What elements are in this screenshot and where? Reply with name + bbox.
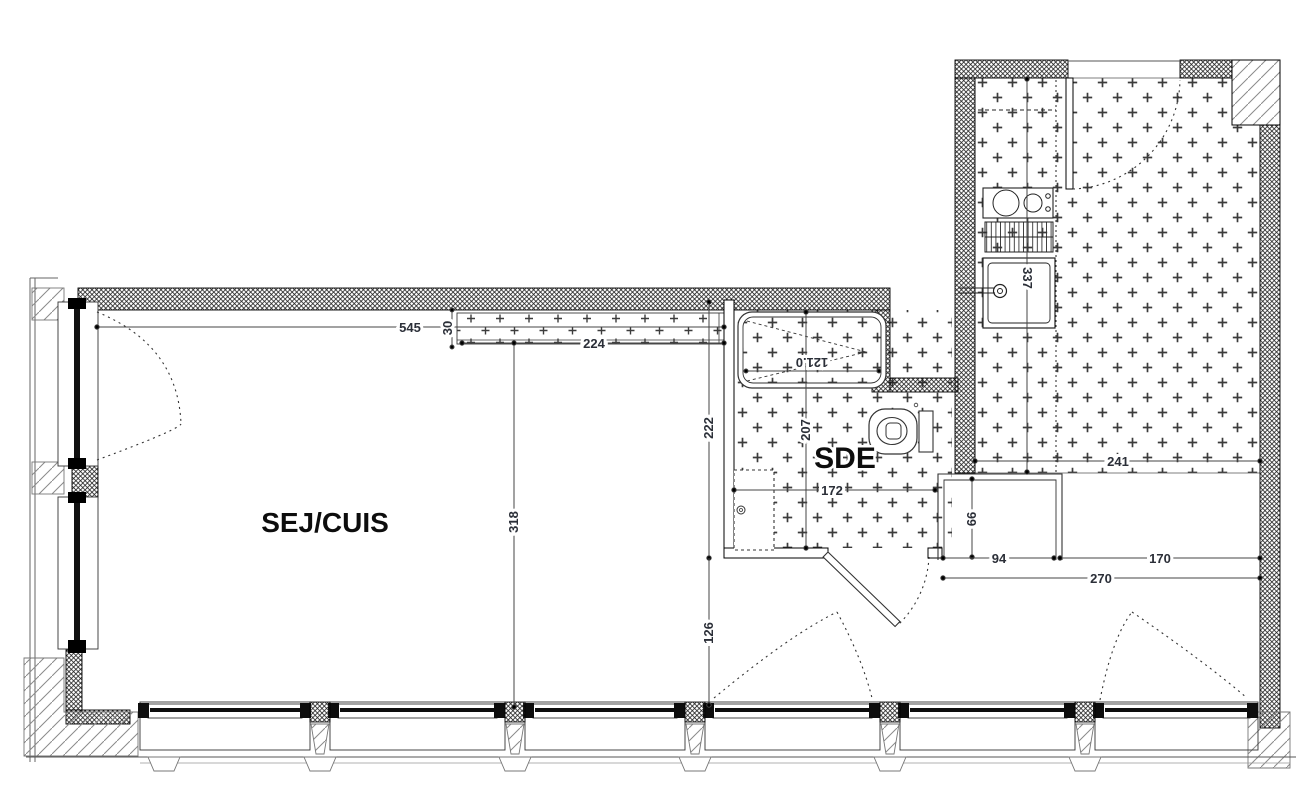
drainer	[985, 222, 1053, 252]
sde-door-leaf	[823, 552, 900, 627]
floor-plan-page: 545 224 30 318 222 126 207 172 121.0 241…	[0, 0, 1296, 800]
shaft-bottom-wall	[890, 378, 958, 392]
dim-label-172: 172	[821, 483, 843, 498]
kitchen-top-wall-b	[1180, 60, 1232, 78]
room-label-sde: SDE	[814, 442, 876, 475]
entry-door-leaf	[1066, 78, 1073, 189]
kitchen-top-wall-a	[955, 60, 1068, 78]
dim-label-224: 224	[583, 336, 605, 351]
dim-label-121: 121.0	[796, 355, 829, 370]
sej-top-wall	[78, 288, 890, 310]
dim-label-241: 241	[1107, 454, 1129, 469]
dim-label-170: 170	[1149, 551, 1171, 566]
dim-label-337: 337	[1020, 267, 1035, 289]
dim-label-207: 207	[798, 419, 813, 441]
room-label-sej-cuis: SEJ/CUIS	[261, 507, 389, 538]
window-swing-arc-1	[714, 612, 872, 698]
closet	[938, 474, 1062, 560]
kitchen-left-wall	[955, 78, 975, 473]
sde-bottom-stub	[928, 548, 942, 558]
cooktop	[983, 188, 1053, 218]
sde-left-partition	[724, 300, 734, 558]
floor-plan-svg: 545 224 30 318 222 126 207 172 121.0 241…	[0, 0, 1296, 800]
sill-block-mid	[32, 462, 64, 494]
washing-machine	[734, 470, 774, 550]
dim-label-270: 270	[1090, 571, 1112, 586]
dim-label-318: 318	[506, 511, 521, 533]
toilet	[869, 403, 933, 454]
corner-column	[1232, 60, 1280, 125]
dim-label-30: 30	[440, 321, 455, 335]
dim-label-545: 545	[399, 320, 421, 335]
window-swing-arc-2	[1100, 612, 1247, 700]
left-window-swing-arc	[97, 312, 181, 460]
bottom-right-slab	[1248, 712, 1290, 768]
dim-label-66: 66	[964, 512, 979, 526]
left-window-1	[58, 298, 98, 469]
left-window-2	[58, 492, 98, 653]
shower-tray	[738, 312, 886, 388]
bottom-left-wall-v	[66, 650, 82, 712]
dim-label-222: 222	[701, 417, 716, 439]
right-wall	[1260, 125, 1280, 728]
dim-label-126: 126	[701, 622, 716, 644]
bottom-windows	[26, 612, 1296, 771]
sde-door-arc	[899, 557, 929, 624]
dim-label-94: 94	[992, 551, 1007, 566]
